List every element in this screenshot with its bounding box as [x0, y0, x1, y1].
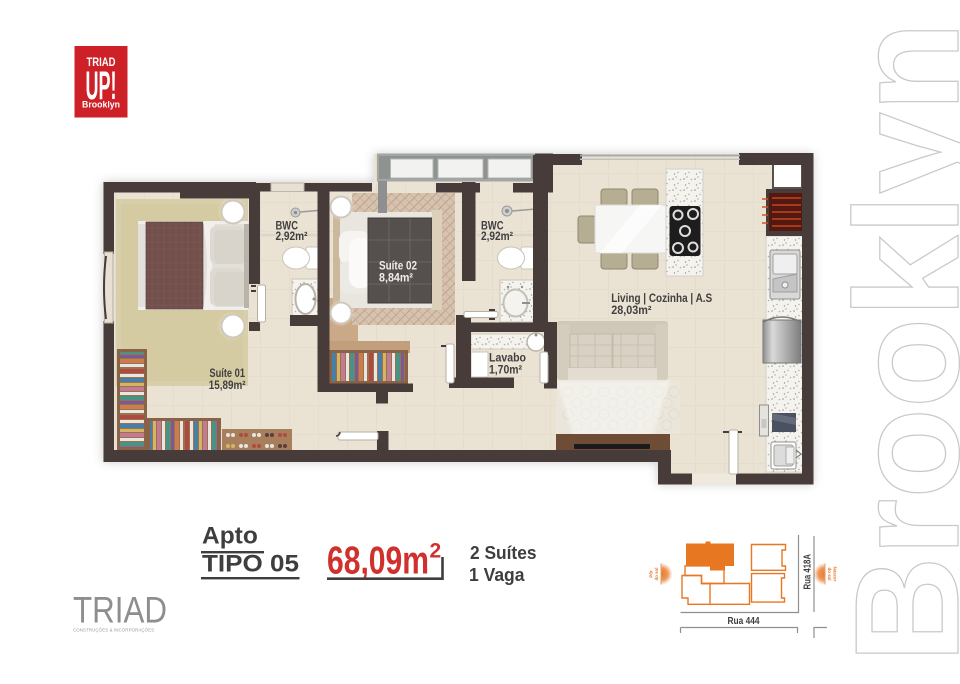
svg-text:Rua 418A: Rua 418A: [803, 554, 814, 590]
svg-text:Brooklyn: Brooklyn: [825, 22, 960, 663]
svg-text:TRIAD: TRIAD: [73, 590, 167, 631]
svg-text:2,92m²: 2,92m²: [276, 229, 308, 243]
svg-text:TIPO 05: TIPO 05: [202, 551, 299, 578]
svg-text:2,92m²: 2,92m²: [481, 229, 513, 243]
svg-text:Pôr: Pôr: [649, 570, 654, 578]
svg-text:8,84m²: 8,84m²: [379, 271, 413, 285]
svg-text:do sol: do sol: [654, 568, 659, 581]
svg-text:2: 2: [430, 540, 442, 563]
svg-text:1 Vaga: 1 Vaga: [469, 565, 525, 585]
svg-text:CONSTRUÇÕES & INCORPORAÇÕES: CONSTRUÇÕES & INCORPORAÇÕES: [73, 628, 154, 633]
svg-text:Apto: Apto: [202, 523, 258, 550]
svg-text:28,03m²: 28,03m²: [611, 303, 651, 317]
svg-text:Rua 444: Rua 444: [728, 616, 760, 627]
svg-text:2 Suítes: 2 Suítes: [470, 543, 537, 563]
svg-text:1,70m²: 1,70m²: [489, 363, 522, 377]
svg-text:15,89m²: 15,89m²: [209, 378, 246, 392]
svg-text:do sol: do sol: [827, 568, 832, 581]
svg-text:68,09m: 68,09m: [327, 539, 429, 582]
svg-text:Brooklyn: Brooklyn: [82, 100, 120, 111]
svg-text:Nascer: Nascer: [833, 567, 838, 582]
